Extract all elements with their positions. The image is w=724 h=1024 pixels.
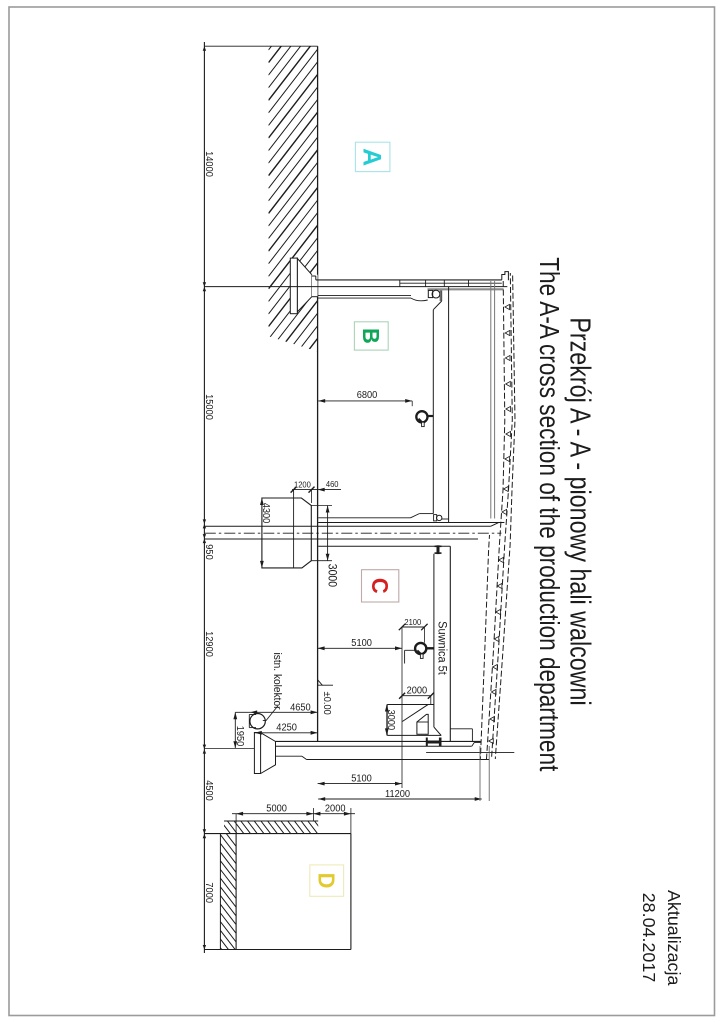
svg-text:5100: 5100: [351, 638, 372, 650]
svg-text:4300: 4300: [260, 503, 272, 524]
svg-text:istn. kolektor: istn. kolektor: [271, 652, 284, 709]
svg-text:3000: 3000: [385, 710, 397, 731]
svg-text:5000: 5000: [266, 803, 287, 815]
svg-text:The A-A cross section of the p: The A-A cross section of the production …: [533, 257, 564, 771]
svg-text:B: B: [358, 328, 384, 344]
svg-text:Przekrój A - A - pionowy hali: Przekrój A - A - pionowy hali walcowni: [564, 317, 597, 705]
svg-text:28.04.2017: 28.04.2017: [639, 893, 659, 983]
svg-text:950: 950: [203, 544, 215, 560]
svg-text:Aktualizacja: Aktualizacja: [664, 890, 684, 986]
svg-text:4500: 4500: [203, 780, 215, 801]
svg-text:15000: 15000: [203, 394, 215, 420]
svg-text:1950: 1950: [234, 726, 246, 747]
svg-text:2000: 2000: [325, 803, 346, 815]
svg-text:2000: 2000: [407, 685, 428, 697]
svg-text:12900: 12900: [203, 631, 215, 657]
svg-text:4650: 4650: [290, 702, 311, 714]
svg-text:D: D: [313, 873, 339, 889]
svg-text:1200: 1200: [294, 480, 311, 489]
svg-text:7000: 7000: [203, 882, 215, 903]
svg-text:5100: 5100: [351, 773, 372, 785]
svg-text:14000: 14000: [203, 151, 215, 177]
svg-text:±0.00: ±0.00: [321, 692, 333, 716]
svg-text:11200: 11200: [385, 788, 411, 800]
svg-text:2100: 2100: [404, 617, 421, 626]
svg-text:C: C: [367, 578, 393, 594]
svg-text:A: A: [358, 148, 386, 166]
svg-text:3000: 3000: [325, 564, 338, 587]
svg-text:460: 460: [326, 480, 339, 489]
svg-text:6800: 6800: [357, 390, 378, 402]
svg-text:4250: 4250: [276, 722, 297, 734]
svg-text:Suwnica 5t: Suwnica 5t: [435, 621, 449, 675]
